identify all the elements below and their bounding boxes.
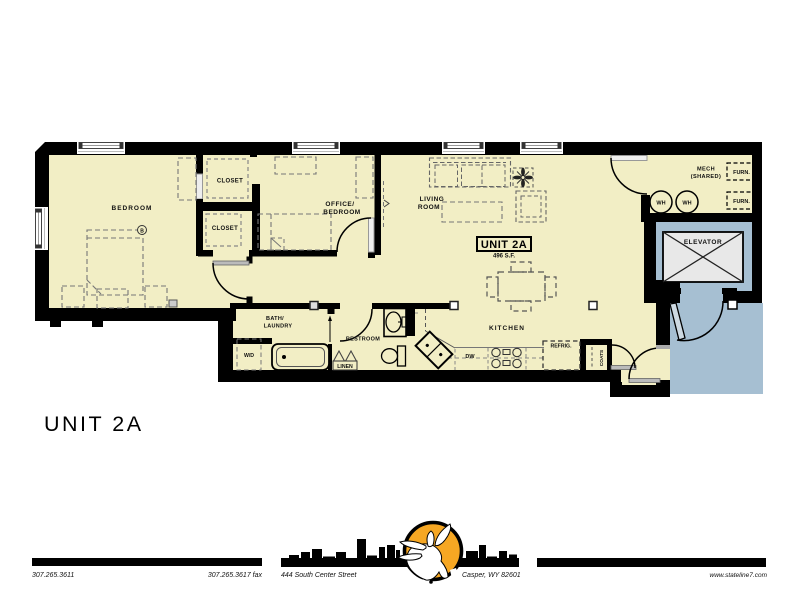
svg-text:Casper, WY 82601: Casper, WY 82601	[462, 572, 521, 579]
svg-text:DW: DW	[465, 354, 475, 360]
svg-text:FURN.: FURN.	[733, 170, 750, 176]
svg-text:LIVING: LIVING	[420, 196, 445, 203]
svg-text:WH: WH	[656, 201, 665, 207]
svg-text:WH: WH	[682, 201, 691, 207]
svg-text:ROOM: ROOM	[418, 204, 440, 211]
svg-text:COATS: COATS	[599, 349, 605, 366]
svg-text:LAUNDRY: LAUNDRY	[264, 324, 293, 330]
svg-text:(SHARED): (SHARED)	[691, 174, 722, 180]
svg-text:CLOSET: CLOSET	[212, 226, 238, 232]
svg-text:CLOSET: CLOSET	[217, 179, 243, 185]
svg-text:KITCHEN: KITCHEN	[489, 325, 525, 332]
svg-text:ELEVATOR: ELEVATOR	[684, 239, 722, 246]
svg-text:RESTROOM: RESTROOM	[346, 337, 380, 343]
svg-text:UNIT 2A: UNIT 2A	[481, 239, 527, 251]
svg-text:B: B	[140, 229, 144, 235]
svg-text:BATH/: BATH/	[266, 316, 284, 322]
svg-text:LINEN: LINEN	[337, 364, 353, 370]
svg-text:444 South Center Street: 444 South Center Street	[281, 572, 358, 579]
svg-text:FURN.: FURN.	[733, 199, 750, 205]
svg-text:307.265.3617 fax: 307.265.3617 fax	[208, 572, 263, 579]
svg-text:496 S.F.: 496 S.F.	[493, 254, 515, 260]
svg-text:307.265.3611: 307.265.3611	[32, 572, 74, 579]
svg-text:OFFICE/: OFFICE/	[325, 201, 354, 208]
svg-text:REFRIG.: REFRIG.	[550, 344, 572, 350]
svg-text:BEDROOM: BEDROOM	[112, 205, 153, 212]
svg-text:UNIT 2A: UNIT 2A	[44, 412, 144, 436]
svg-text:W/D: W/D	[244, 353, 254, 359]
svg-text:BEDROOM: BEDROOM	[323, 209, 360, 216]
svg-text:www.stateline7.com: www.stateline7.com	[710, 572, 768, 579]
svg-text:MECH: MECH	[697, 167, 715, 173]
